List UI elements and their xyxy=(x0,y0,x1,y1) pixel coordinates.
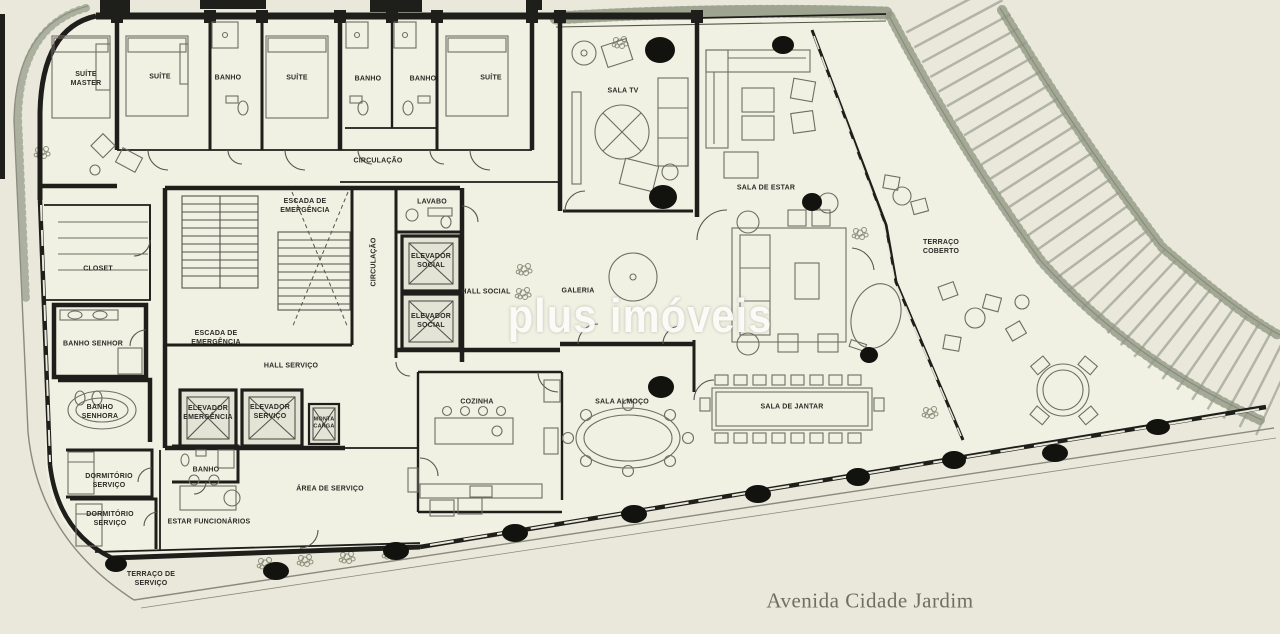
room-label-sala-tv: SALA TV xyxy=(607,86,638,95)
watermark: plus imóveis xyxy=(508,293,773,341)
room-label-cozinha: COZINHA xyxy=(460,397,493,406)
room-label-terraco-coberto: TERRAÇO COBERTO xyxy=(913,238,969,256)
room-label-dormitorio-servico-2: DORMITÓRIO SERVIÇO xyxy=(82,510,138,528)
room-label-suite-master: SUÍTE MASTER xyxy=(59,70,113,88)
apartment-footprint xyxy=(38,13,1266,558)
room-label-dormitorio-servico-1: DORMITÓRIO SERVIÇO xyxy=(81,472,137,490)
room-label-area-de-servico: ÁREA DE SERVIÇO xyxy=(296,484,364,493)
room-label-banho-servico: BANHO xyxy=(193,465,220,474)
room-label-suite-1: SUÍTE xyxy=(149,72,171,81)
room-label-banho-2: BANHO xyxy=(355,74,382,83)
room-label-hall-servico: HALL SERVIÇO xyxy=(264,361,318,370)
room-label-sala-de-estar: SALA DE ESTAR xyxy=(737,183,795,192)
room-label-elevador-emergencia: ELEVADOR EMERGÊNCIA xyxy=(179,404,237,422)
room-label-terraco-de-servico: TERRAÇO DE SERVIÇO xyxy=(121,570,181,588)
room-label-elevador-social-2: ELEVADOR SOCIAL xyxy=(407,312,455,330)
room-label-sala-almoco: SALA ALMOÇO xyxy=(595,397,649,406)
room-label-banho-senhora: BANHO SENHORA xyxy=(77,403,123,421)
room-label-escada-emergencia-1: ESCADA DE EMERGÊNCIA xyxy=(273,197,337,215)
street-name-label: Avenida Cidade Jardim xyxy=(766,591,973,612)
room-label-banho-3: BANHO xyxy=(410,74,437,83)
room-label-banho-1: BANHO xyxy=(215,73,242,82)
room-label-elevador-social-1: ELEVADOR SOCIAL xyxy=(407,252,455,270)
room-label-hall-social: HALL SOCIAL xyxy=(461,287,510,296)
floor-plan: SUÍTE MASTER SUÍTE BANHO SUÍTE BANHO BAN… xyxy=(0,0,1280,634)
room-label-monta-carga: MONTA CARGA xyxy=(309,416,339,429)
room-label-circulacao: CIRCULAÇÃO xyxy=(353,156,402,165)
room-label-estar-funcionarios: ESTAR FUNCIONÁRIOS xyxy=(168,517,251,526)
room-label-lavabo: LAVABO xyxy=(417,197,447,206)
room-label-sala-de-jantar: SALA DE JANTAR xyxy=(760,402,823,411)
room-label-banho-senhor: BANHO SENHOR xyxy=(63,339,123,348)
room-label-closet: CLOSET xyxy=(83,264,113,273)
room-label-suite-2: SUÍTE xyxy=(286,73,308,82)
room-label-circulacao-vertical: CIRCULAÇÃO xyxy=(369,237,378,286)
room-label-suite-3: SUÍTE xyxy=(480,73,502,82)
room-label-elevador-servico: ELEVADOR SERVIÇO xyxy=(245,403,295,421)
room-label-escada-emergencia-2: ESCADA DE EMERGÊNCIA xyxy=(184,329,248,347)
